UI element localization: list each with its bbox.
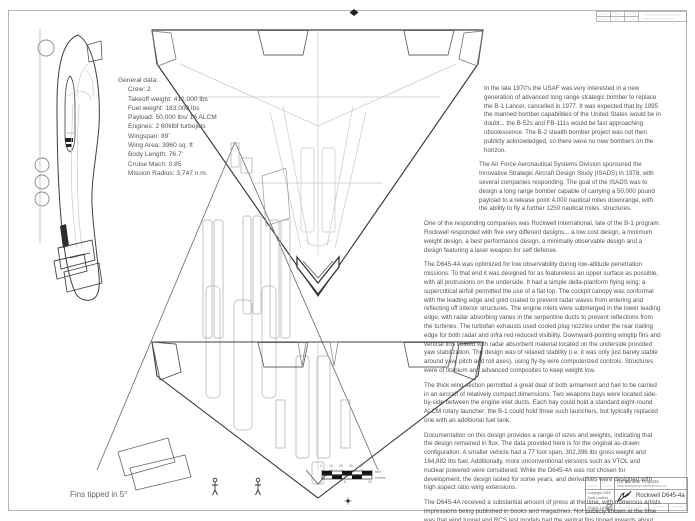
human-figure-icon: [255, 478, 261, 495]
overlay-detail-cluster: [97, 142, 378, 470]
general-data-item: Engines: 2 60klbf turbojets: [118, 122, 217, 131]
scale-tick-label: 30: [349, 464, 353, 468]
elevon-outline: [404, 31, 454, 55]
description-paragraph: In the late 1970's the USAF was very int…: [424, 85, 662, 155]
general-data-item: Mission Radius: 3,747 n.m.: [118, 169, 217, 178]
description-paragraph: The D645-4A was optimized for low observ…: [424, 261, 662, 375]
scale-tick-label: 0: [320, 464, 322, 468]
bottom-view-faint-lines: [276, 343, 350, 484]
cross-section-circle: [35, 158, 49, 172]
description-paragraph: One of the responding companies was Rock…: [424, 220, 662, 255]
scale-unit-label: meters: [375, 476, 386, 480]
nose-canopy-chevron: [297, 257, 339, 294]
scale-tick-label: 5: [344, 480, 346, 484]
wingtip-fin-outline: [152, 31, 176, 66]
general-data-item: Body Length: 76.7': [118, 150, 217, 159]
lower-left-gear-boxes: [118, 438, 191, 490]
fins-note-caption: Fins tipped in 5°: [70, 490, 127, 499]
scale-tick-label: 20: [339, 464, 343, 468]
general-data-item: Cruise Mach: 0.85: [118, 160, 217, 169]
wingtip-fin-outline: [459, 31, 483, 66]
revision-strip: [597, 12, 687, 22]
cross-section-circle: [38, 40, 54, 56]
title-block-project: US Bomber Projects: [617, 479, 659, 484]
scale-unit-label: feet: [375, 470, 381, 474]
canopy-outline: [87, 41, 102, 62]
title-block-author: Scott Lowther: [588, 496, 609, 500]
thin-front-silhouette-drawing: [65, 76, 75, 152]
description-paragraph: The Air Force Aeronautical Systems Divis…: [424, 161, 662, 214]
scale-tick-label: 10: [368, 480, 372, 484]
scale-tick-label: 10: [329, 464, 333, 468]
general-data-item: Payload: 50,000 lbs/ 16 ALCM: [118, 113, 217, 122]
center-mark-icon: [344, 497, 352, 505]
title-block-copyright: Copyright 2016: [588, 491, 611, 495]
section-reference-line: [35, 28, 54, 244]
general-data-item: Wing Area: 3960 sq. ft: [118, 141, 217, 150]
general-data-block: General data: Crew: 2 Takeoff weight: 41…: [118, 76, 217, 178]
scale-tick-label: 0: [320, 480, 322, 484]
general-data-item: Wingspan: 89': [118, 132, 217, 141]
description-paragraph: The D645-4A received a substantial amoun…: [424, 499, 662, 521]
title-block-scale-label: SCALE 1 INCH: [588, 506, 611, 510]
cross-section-circle: [35, 175, 49, 189]
scale-bar: [322, 470, 372, 480]
general-data-item: Takeoff weight: 412,000 lbs: [118, 95, 217, 104]
general-data-item: Crew: 2: [118, 85, 217, 94]
description-column: In the late 1970's the USAF was very int…: [424, 85, 662, 521]
cross-section-circle: [35, 192, 49, 206]
drawing-sheet: General data: Crew: 2 Takeoff weight: 41…: [0, 0, 695, 521]
title-block-drawing-title: Rockwell D645-4a: [636, 493, 685, 499]
elevon-outline: [258, 31, 308, 55]
scale-tick-label: 40: [359, 464, 363, 468]
interior-faint-lines: [68, 64, 93, 248]
top-view-faint-lines: [180, 31, 456, 255]
description-paragraph: The thick wing section permitted a great…: [424, 382, 662, 426]
general-data-title: General data:: [118, 76, 217, 85]
general-data-item: Fuel weight: 183,000 lbs: [118, 104, 217, 113]
gear-dark-detail: [60, 224, 69, 248]
landing-gear-boxes: [54, 240, 102, 292]
elevon-outline: [258, 343, 308, 367]
title-block-website: www.aerospaceprojectsreview.com: [617, 484, 667, 488]
side-profile-drawing: [54, 35, 102, 300]
human-figure-icon: [212, 478, 218, 495]
